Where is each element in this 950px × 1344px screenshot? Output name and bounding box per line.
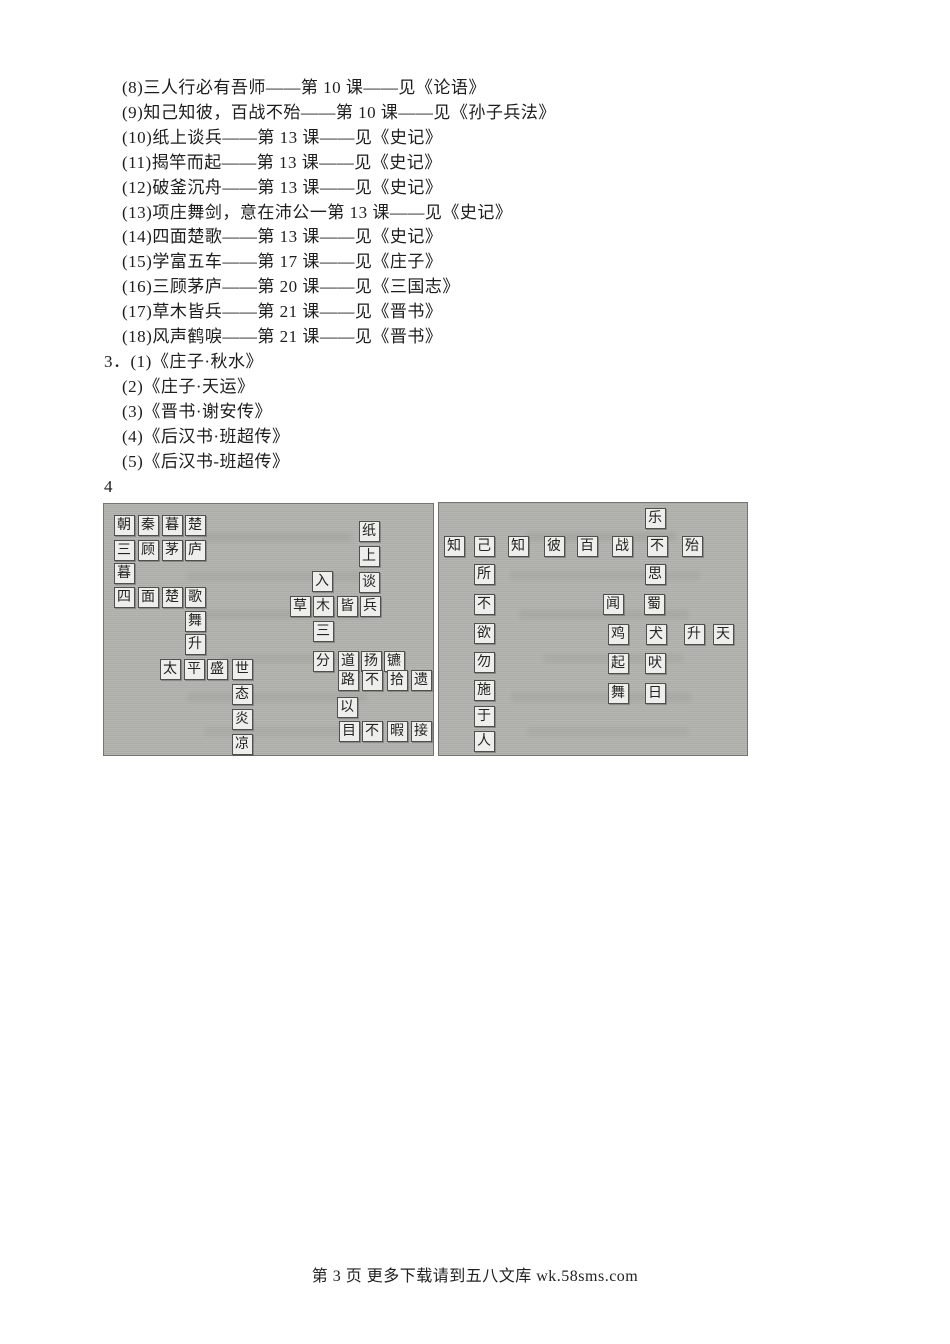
- puzzle-panel-left: 朝秦暮楚三顾茅庐暮四面楚歌舞升太平盛世态炎凉纸上入谈草木皆兵三分道扬镳路不拾遗以…: [103, 503, 434, 756]
- char-tile: 蜀: [644, 594, 665, 615]
- char-tile: 暮: [114, 563, 135, 584]
- char-tile: 不: [474, 594, 495, 615]
- char-tile: 茅: [162, 540, 183, 561]
- char-tile: 楚: [185, 515, 206, 536]
- document-page: (8)三人行必有吾师——第 10 课——见《论语》(9)知己知彼，百战不殆——第…: [0, 0, 950, 1344]
- char-tile: 接: [411, 721, 432, 742]
- char-tile: 遗: [411, 670, 432, 691]
- answer-line: (18)风声鹤唳——第 21 课——见《晋书》: [0, 325, 950, 350]
- char-tile: 暮: [162, 515, 183, 536]
- char-tile: 纸: [359, 521, 380, 542]
- answer-line: (17)草木皆兵——第 21 课——见《晋书》: [0, 300, 950, 325]
- char-tile: 吠: [645, 653, 666, 674]
- char-tile: 勿: [474, 652, 495, 673]
- answer-line: 4: [0, 475, 950, 500]
- answer-line: (16)三顾茅庐——第 20 课——见《三国志》: [0, 275, 950, 300]
- char-tile: 谈: [359, 572, 380, 593]
- char-tile: 以: [337, 697, 358, 718]
- char-tile: 草: [290, 596, 311, 617]
- char-tile: 欲: [474, 623, 495, 644]
- char-tile: 入: [312, 571, 333, 592]
- answer-line: (11)揭竿而起——第 13 课——见《史记》: [0, 151, 950, 176]
- char-tile: 世: [232, 659, 253, 680]
- char-tile: 顾: [138, 540, 159, 561]
- char-tile: 升: [684, 624, 705, 645]
- char-tile: 秦: [138, 515, 159, 536]
- puzzle-panel-right: 乐知己知彼百战不殆所思不闻蜀欲鸡犬升天勿起吠施舞日于人: [438, 502, 748, 756]
- char-tile: 上: [359, 546, 380, 567]
- char-tile: 人: [474, 731, 495, 752]
- char-tile: 分: [313, 651, 334, 672]
- char-tile: 所: [474, 564, 495, 585]
- answer-line: (3)《晋书·谢安传》: [0, 400, 950, 425]
- char-tile: 舞: [608, 683, 629, 704]
- char-tile: 犬: [646, 624, 667, 645]
- answer-line: (5)《后汉书-班超传》: [0, 450, 950, 475]
- answer-line: (9)知己知彼，百战不殆——第 10 课——见《孙子兵法》: [0, 101, 950, 126]
- char-tile: 太: [160, 659, 181, 680]
- answer-list: (8)三人行必有吾师——第 10 课——见《论语》(9)知己知彼，百战不殆——第…: [0, 76, 950, 499]
- char-tile: 木: [313, 596, 334, 617]
- char-tile: 殆: [682, 536, 703, 557]
- char-tile: 战: [612, 536, 633, 557]
- char-tile: 不: [647, 536, 668, 557]
- char-tile: 百: [577, 536, 598, 557]
- answer-line: 3．(1)《庄子·秋水》: [0, 350, 950, 375]
- char-tile: 施: [474, 680, 495, 701]
- char-tile: 面: [138, 587, 159, 608]
- answer-line: (4)《后汉书·班超传》: [0, 425, 950, 450]
- answer-line: (12)破釜沉舟——第 13 课——见《史记》: [0, 176, 950, 201]
- char-tile: 朝: [114, 515, 135, 536]
- char-tile: 知: [508, 536, 529, 557]
- char-tile: 皆: [337, 596, 358, 617]
- answer-line: (14)四面楚歌——第 13 课——见《史记》: [0, 225, 950, 250]
- answer-line: (15)学富五车——第 17 课——见《庄子》: [0, 250, 950, 275]
- char-tile: 三: [313, 621, 334, 642]
- char-tile: 路: [338, 670, 359, 691]
- char-tile: 平: [184, 659, 205, 680]
- char-tile: 盛: [207, 659, 228, 680]
- char-tile: 镳: [384, 651, 405, 672]
- char-tile: 于: [474, 706, 495, 727]
- char-tile: 炎: [232, 709, 253, 730]
- char-tile: 庐: [185, 540, 206, 561]
- char-tile: 日: [645, 683, 666, 704]
- page-footer: 第 3 页 更多下载请到五八文库 wk.58sms.com: [0, 1262, 950, 1286]
- char-tile: 兵: [360, 596, 381, 617]
- char-tile: 道: [338, 651, 359, 672]
- char-tile: 升: [185, 634, 206, 655]
- char-tile: 己: [474, 536, 495, 557]
- char-tile: 彼: [544, 536, 565, 557]
- answer-line: (8)三人行必有吾师——第 10 课——见《论语》: [0, 76, 950, 101]
- char-tile: 暇: [387, 721, 408, 742]
- char-tile: 四: [114, 587, 135, 608]
- char-tile: 天: [713, 624, 734, 645]
- char-tile: 不: [362, 721, 383, 742]
- char-tile: 歌: [185, 587, 206, 608]
- char-tile: 乐: [645, 508, 666, 529]
- char-tile: 鸡: [608, 624, 629, 645]
- char-tile: 闻: [603, 594, 624, 615]
- char-tile: 知: [444, 536, 465, 557]
- answer-line: (2)《庄子·天运》: [0, 375, 950, 400]
- char-tile: 目: [339, 721, 360, 742]
- char-tile: 不: [362, 670, 383, 691]
- char-tile: 拾: [387, 670, 408, 691]
- char-tile: 扬: [361, 651, 382, 672]
- char-tile: 三: [114, 540, 135, 561]
- char-tile: 思: [645, 564, 666, 585]
- char-tile: 舞: [185, 611, 206, 632]
- char-tile: 起: [608, 653, 629, 674]
- char-tile: 态: [232, 684, 253, 705]
- answer-line: (13)项庄舞剑，意在沛公一第 13 课——见《史记》: [0, 201, 950, 226]
- answer-line: (10)纸上谈兵——第 13 课——见《史记》: [0, 126, 950, 151]
- char-tile: 凉: [232, 734, 253, 755]
- char-tile: 楚: [162, 587, 183, 608]
